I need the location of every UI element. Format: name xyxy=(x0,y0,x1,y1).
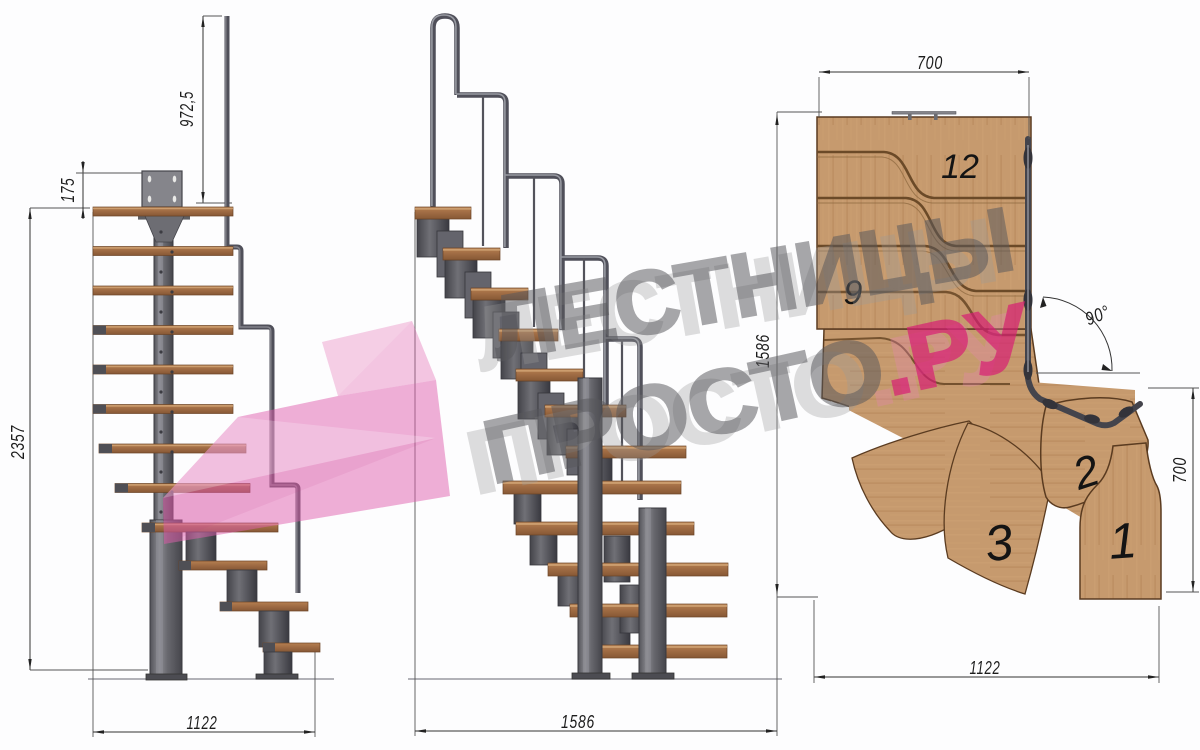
svg-text:700: 700 xyxy=(1169,457,1190,483)
svg-text:1586: 1586 xyxy=(561,711,595,732)
svg-text:1: 1 xyxy=(1107,512,1139,570)
svg-text:1122: 1122 xyxy=(970,657,1001,678)
svg-text:1122: 1122 xyxy=(187,712,218,733)
svg-text:12: 12 xyxy=(941,148,979,186)
svg-text:972,5: 972,5 xyxy=(176,91,197,127)
svg-text:700: 700 xyxy=(917,52,943,73)
svg-text:2357: 2357 xyxy=(7,425,28,460)
svg-text:175: 175 xyxy=(57,178,78,203)
